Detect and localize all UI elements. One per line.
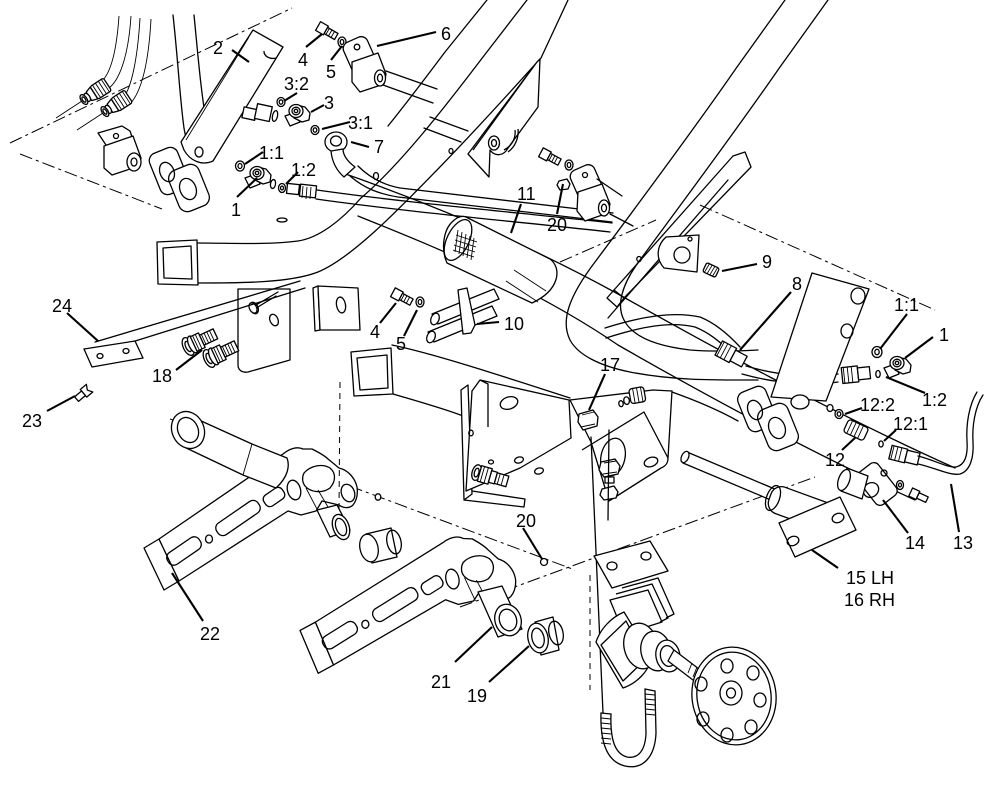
svg-text:1:2: 1:2 — [922, 390, 947, 410]
svg-text:1:1: 1:1 — [894, 295, 919, 315]
svg-text:5: 5 — [396, 334, 406, 354]
svg-text:4: 4 — [298, 50, 308, 70]
svg-text:12:1: 12:1 — [893, 414, 928, 434]
svg-text:1: 1 — [231, 200, 241, 220]
svg-text:12:2: 12:2 — [860, 395, 895, 415]
svg-text:15 LH: 15 LH — [846, 568, 894, 588]
svg-text:7: 7 — [374, 137, 384, 157]
svg-text:1:1: 1:1 — [259, 143, 284, 163]
svg-text:1: 1 — [939, 325, 949, 345]
svg-text:24: 24 — [52, 296, 72, 316]
svg-text:16 RH: 16 RH — [844, 590, 895, 610]
svg-text:9: 9 — [762, 252, 772, 272]
svg-text:3:2: 3:2 — [284, 74, 309, 94]
svg-text:2: 2 — [213, 38, 223, 58]
svg-text:4: 4 — [370, 322, 380, 342]
svg-text:21: 21 — [431, 672, 451, 692]
svg-text:5: 5 — [326, 62, 336, 82]
svg-text:20: 20 — [547, 215, 567, 235]
svg-text:8: 8 — [792, 274, 802, 294]
svg-text:23: 23 — [22, 411, 42, 431]
svg-text:6: 6 — [441, 24, 451, 44]
svg-text:10: 10 — [504, 314, 524, 334]
svg-text:12: 12 — [825, 450, 845, 470]
svg-text:1:2: 1:2 — [291, 160, 316, 180]
svg-text:11: 11 — [517, 184, 536, 204]
svg-text:22: 22 — [200, 624, 220, 644]
svg-text:3: 3 — [324, 93, 334, 113]
svg-text:17: 17 — [600, 355, 620, 375]
svg-text:19: 19 — [467, 686, 487, 706]
svg-text:14: 14 — [905, 533, 925, 553]
svg-text:3:1: 3:1 — [348, 113, 373, 133]
svg-text:18: 18 — [152, 366, 172, 386]
svg-text:13: 13 — [953, 533, 973, 553]
svg-text:20: 20 — [516, 511, 536, 531]
